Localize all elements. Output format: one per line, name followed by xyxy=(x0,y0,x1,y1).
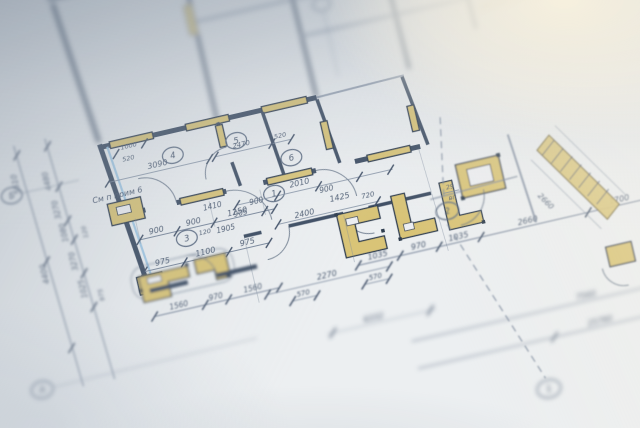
blueprint-photo: 5610 4400 4480 3270 1080 3270 1025 120 9… xyxy=(0,0,640,428)
floor-plan-drawing: 5610 4400 4480 3270 1080 3270 1025 120 9… xyxy=(0,0,640,428)
paper-sheet xyxy=(0,0,640,428)
